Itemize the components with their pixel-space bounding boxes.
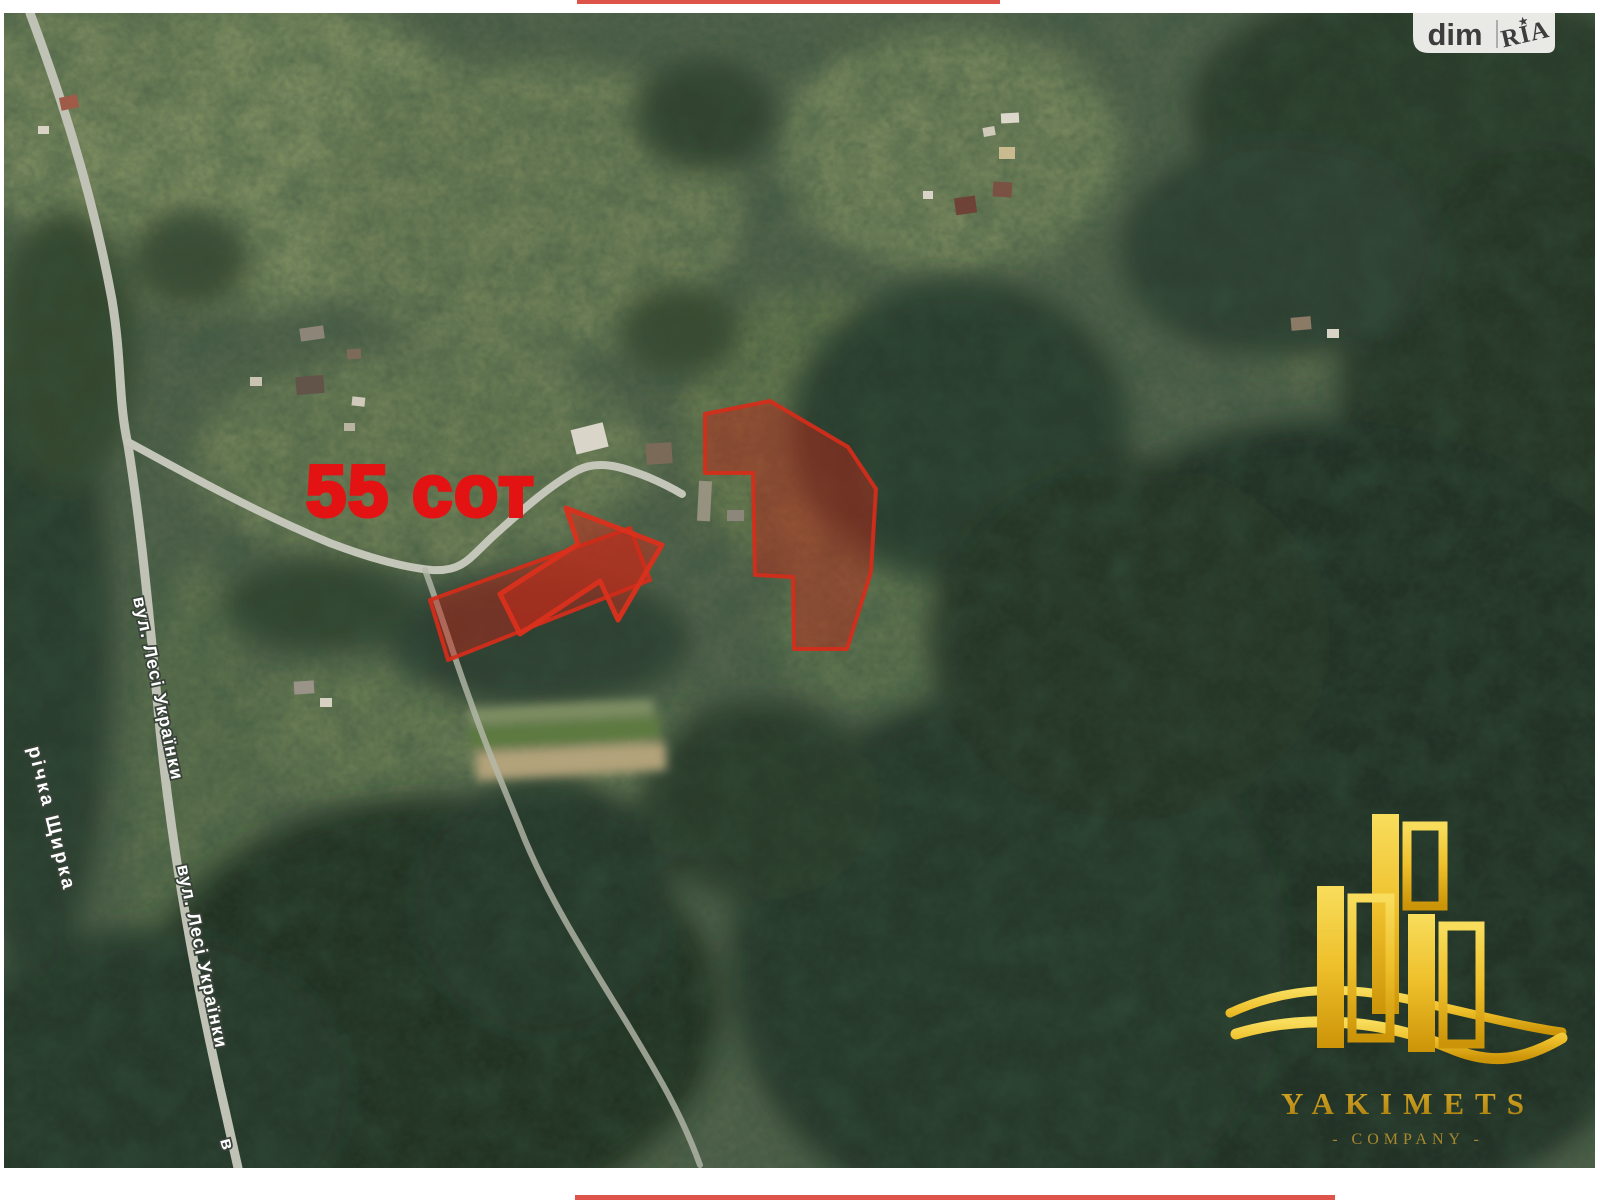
satellite-map: 55 сот вул. Лесі Українки вул. Лесі Укра…	[0, 0, 1600, 1200]
logo-subtitle: - COMPANY -	[1332, 1131, 1484, 1148]
watermark-badge: dim RIA ★	[1413, 9, 1555, 53]
top-red-line	[577, 0, 1000, 4]
logo-name: YAKIMETS	[1281, 1086, 1535, 1121]
area-label: 55 сот	[306, 452, 536, 532]
listing-image: 55 сот вул. Лесі Українки вул. Лесі Укра…	[0, 0, 1600, 1200]
bottom-red-line	[575, 1195, 1335, 1200]
dim-logo: dim	[1427, 17, 1482, 52]
